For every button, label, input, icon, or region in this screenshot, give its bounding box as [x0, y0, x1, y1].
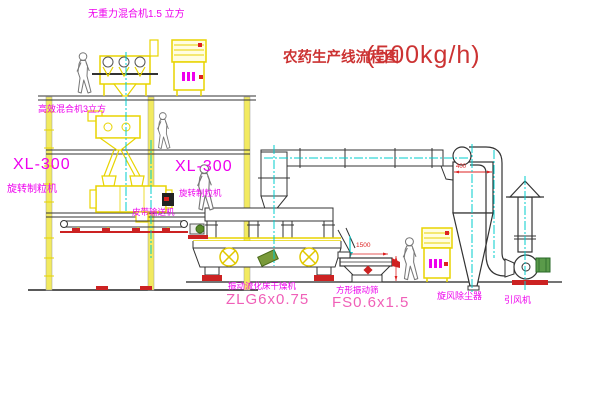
- label-fan: 引风机: [504, 296, 531, 305]
- label-granulator-model-left: XL-300: [13, 157, 71, 173]
- person-near-sieve: [403, 238, 418, 280]
- label-sieve-model: FS0.6x1.5: [332, 295, 409, 310]
- high-efficiency-mixer-drawing: [88, 111, 140, 176]
- control-cabinet-roof: [172, 40, 206, 96]
- dimension-sieve-length: 1500: [356, 243, 370, 250]
- cad-drawing-canvas: 无重力混合机1.5 立方 农药生产线流程图 (500kg/h) 高效混合机3立方…: [0, 0, 600, 403]
- label-granulator-model-mid: XL-300: [175, 159, 233, 175]
- label-gravity-mixer: 无重力混合机1.5 立方: [88, 10, 185, 20]
- label-high-eff-mixer: 高效混合机3立方: [38, 105, 106, 114]
- person-floor2: [157, 113, 169, 149]
- fluid-bed-dryer-drawing: [188, 208, 341, 281]
- label-granulator-name-mid: 旋转制粒机: [179, 189, 222, 198]
- control-cabinet-cyclone: [422, 228, 452, 282]
- label-granulator-name-left: 旋转制粒机: [7, 185, 57, 195]
- induced-draft-fan-drawing: [505, 255, 550, 285]
- belt-conveyor-drawing: [60, 221, 188, 233]
- label-dryer-name: 振动流化床干燥机: [228, 282, 296, 291]
- gravity-mixer-drawing: [92, 40, 158, 96]
- person-roof: [77, 53, 91, 93]
- label-cyclone: 旋风除尘器: [437, 292, 482, 301]
- drawing-title-capacity: (500kg/h): [366, 43, 481, 68]
- label-belt-conveyor: 皮带输送机: [132, 208, 175, 217]
- dimension-cyclone-dia: 400: [456, 164, 466, 170]
- vibrating-sieve-drawing: [338, 228, 400, 282]
- label-dryer-model: ZLG6x0.75: [226, 292, 309, 307]
